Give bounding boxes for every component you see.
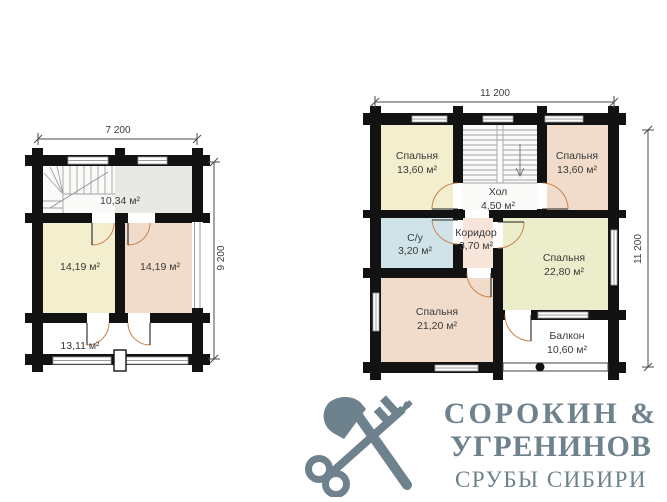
- dim-height-second: 11 200: [633, 234, 644, 264]
- label-bathroom-name: С/у: [407, 232, 424, 244]
- dim-width-second: 11 200: [480, 88, 510, 99]
- entry-marker: [114, 350, 126, 371]
- label-balcony-area: 10,60 м²: [547, 344, 587, 356]
- logo-line-2: УГРЕНИНОВ: [437, 430, 665, 463]
- label-bedroom-bottom-area: 21,20 м²: [417, 320, 457, 332]
- label-bedroom-tr-area: 13,60 м²: [557, 164, 597, 176]
- label-room-left-area: 14,19 м²: [60, 261, 100, 273]
- label-bedroom-tr-name: Спальня: [556, 150, 598, 162]
- dim-height-first: 9 200: [216, 245, 227, 270]
- label-corridor-name: Коридор: [455, 227, 497, 239]
- label-bedroom-tl-area: 13,60 м²: [397, 164, 437, 176]
- logo-line-1: СОРОКИН &: [437, 397, 665, 430]
- logo-text: СОРОКИН & УГРЕНИНОВ СРУБЫ СИБИРИ: [437, 397, 665, 494]
- label-hall-area: 10,34 м²: [100, 195, 140, 207]
- label-bedroom-tl-name: Спальня: [396, 150, 438, 162]
- first-floor-plan: 7 200 9 200 10,34 м² 14,19 м² 14,19 м² 1…: [22, 118, 232, 383]
- balcony-post: [536, 363, 545, 372]
- balcony-railing: [503, 363, 608, 372]
- axe-and-key-icon: [299, 393, 423, 497]
- label-bathroom-area: 3,20 м²: [398, 245, 433, 257]
- label-terrace-area: 13,11 м²: [60, 340, 100, 352]
- company-logo: СОРОКИН & УГРЕНИНОВ СРУБЫ СИБИРИ: [299, 391, 665, 499]
- label-balcony-name: Балкон: [549, 330, 584, 342]
- second-floor-plan: 11 200 11 200 Спальня 13,60 м² Спальня 1…: [358, 83, 658, 383]
- label-bedroom-right-name: Спальня: [543, 252, 585, 264]
- label-room-right-area: 14,19 м²: [140, 261, 180, 273]
- label-bedroom-bottom-name: Спальня: [416, 306, 458, 318]
- label-hall-name: Хол: [489, 186, 508, 198]
- dim-width-first: 7 200: [105, 125, 130, 136]
- label-bedroom-right-area: 22,80 м²: [544, 266, 584, 278]
- page: 7 200 9 200 10,34 м² 14,19 м² 14,19 м² 1…: [0, 0, 667, 502]
- label-corridor-area: 3,70 м²: [459, 240, 494, 252]
- logo-line-3: СРУБЫ СИБИРИ: [437, 465, 665, 494]
- label-hall-area: 4,50 м²: [481, 200, 516, 212]
